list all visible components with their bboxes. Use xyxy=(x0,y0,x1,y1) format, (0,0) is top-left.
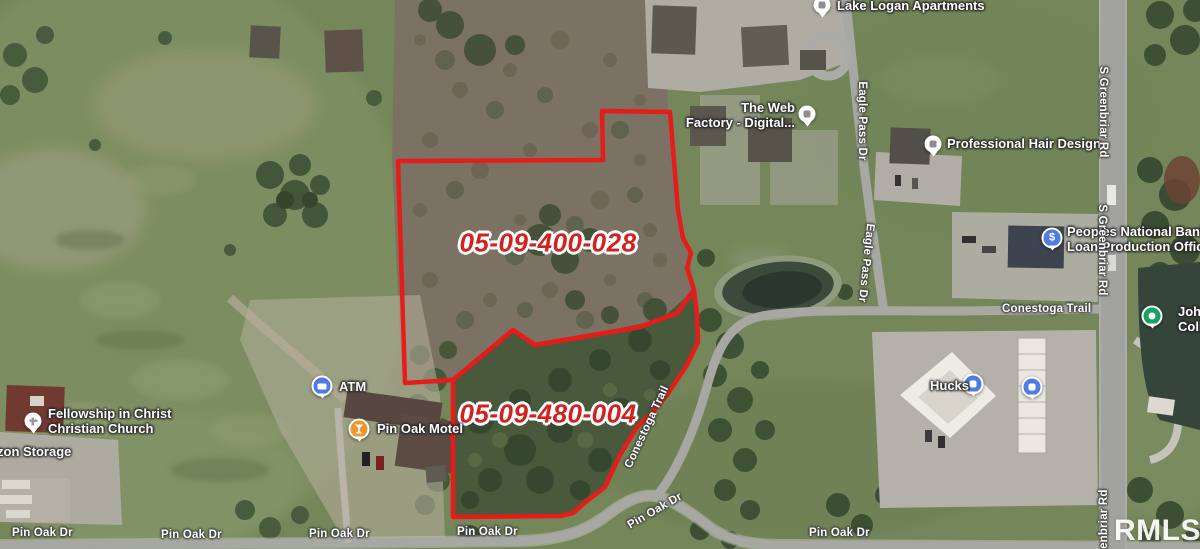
bank-label[interactable]: Peoples National Bank - Loan Production … xyxy=(1067,224,1200,254)
atm-label[interactable]: ATM xyxy=(339,379,366,394)
street-label-pin-oak-dr-2: Pin Oak Dr xyxy=(161,529,222,541)
building-icon xyxy=(1029,384,1036,391)
rmlsa-watermark: RMLSA xyxy=(1114,514,1200,548)
satellite-imagery xyxy=(0,0,1200,549)
web-factory-pin-icon[interactable] xyxy=(799,106,816,123)
building-icon xyxy=(804,111,811,118)
bank-dollar-pin-icon[interactable]: $ xyxy=(1042,228,1063,249)
cross-icon xyxy=(29,417,37,425)
motel-cocktail-pin-icon[interactable] xyxy=(349,419,370,440)
atm-pin-icon[interactable] xyxy=(312,376,333,397)
street-label-s-greenbriar-rd-3: S Greenbriar Rd xyxy=(1098,489,1110,549)
building-icon xyxy=(930,141,937,148)
dollar-icon: $ xyxy=(1049,233,1055,244)
street-label-pin-oak-dr-1: Pin Oak Dr xyxy=(12,527,73,539)
street-label-eagle-pass-dr-1: Eagle Pass Dr xyxy=(856,81,868,160)
hucks-label[interactable]: Hucks xyxy=(930,378,969,393)
church-pin-icon[interactable] xyxy=(25,413,42,430)
storage-label[interactable]: zon Storage xyxy=(0,444,71,459)
lake-logan-apartments-label[interactable]: Lake Logan Apartments xyxy=(837,0,985,13)
hair-design-pin-icon[interactable] xyxy=(925,136,942,153)
fuel-pump-icon xyxy=(970,381,977,388)
street-label-pin-oak-dr-4: Pin Oak Dr xyxy=(457,526,518,538)
street-label-conestoga-trail-2: Conestoga Trail xyxy=(1002,303,1091,315)
poi-pin-icon[interactable] xyxy=(1022,377,1043,398)
college-label[interactable]: John Colle xyxy=(1178,304,1200,334)
motel-label[interactable]: Pin Oak Motel xyxy=(377,421,463,436)
atm-card-icon xyxy=(318,383,327,389)
web-factory-label[interactable]: The Web Factory - Digital... xyxy=(686,100,795,130)
parcel-a-label: 05-09-400-028 xyxy=(459,228,636,259)
dot-icon xyxy=(1149,313,1156,320)
street-label-s-greenbriar-rd-2: S Greenbriar Rd xyxy=(1096,204,1108,295)
street-label-pin-oak-dr-3: Pin Oak Dr xyxy=(309,528,370,540)
building-icon xyxy=(819,2,826,9)
parcel-b-label: 05-09-480-004 xyxy=(459,399,636,430)
hair-design-label[interactable]: Professional Hair Design xyxy=(947,136,1101,151)
street-label-pin-oak-dr-6: Pin Oak Dr xyxy=(809,527,870,539)
street-label-s-greenbriar-rd-1: S Greenbriar Rd xyxy=(1097,66,1109,157)
church-label[interactable]: Fellowship in Christ Christian Church xyxy=(48,406,172,436)
map-canvas[interactable]: 05-09-400-028 05-09-480-004 $ Lake Logan… xyxy=(0,0,1200,549)
cocktail-glass-icon xyxy=(355,425,364,434)
college-pin-icon[interactable] xyxy=(1142,306,1163,327)
